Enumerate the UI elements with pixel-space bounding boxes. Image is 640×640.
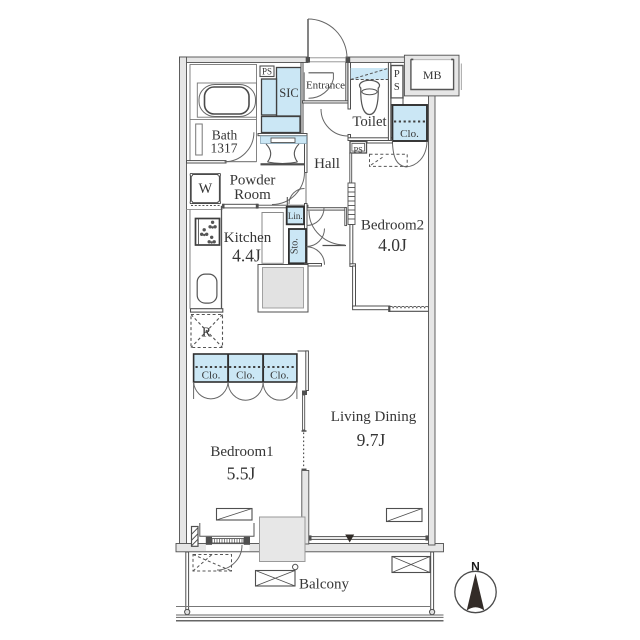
svg-text:Toilet: Toilet [352,114,387,130]
svg-text:N: N [471,560,480,574]
svg-text:P: P [394,69,400,80]
svg-text:PS: PS [262,67,272,77]
svg-text:Clo.: Clo. [270,370,289,382]
svg-text:Clo.: Clo. [236,370,255,382]
svg-text:MB: MB [423,68,442,82]
svg-text:Bedroom2: Bedroom2 [361,217,424,233]
svg-text:S: S [394,82,400,93]
svg-text:Lin.: Lin. [288,211,303,221]
svg-text:Clo.: Clo. [400,128,419,140]
svg-text:5.5J: 5.5J [227,464,256,484]
svg-text:Entrance: Entrance [306,80,345,92]
svg-text:W: W [198,181,212,197]
svg-text:Room: Room [234,187,271,203]
svg-text:Bedroom1: Bedroom1 [210,444,273,460]
svg-text:4.4J: 4.4J [232,246,261,266]
svg-text:Balcony: Balcony [299,577,349,593]
svg-text:Clo.: Clo. [202,370,221,382]
svg-text:1317: 1317 [211,141,238,156]
svg-text:4.0J: 4.0J [378,235,407,255]
svg-text:R: R [202,325,211,340]
svg-text:Kitchen: Kitchen [224,230,272,246]
svg-text:Sto.: Sto. [289,238,300,254]
svg-text:Living Dining: Living Dining [331,409,417,425]
svg-text:Hall: Hall [314,156,340,172]
svg-text:9.7J: 9.7J [357,430,386,450]
svg-text:SIC: SIC [279,86,298,100]
svg-text:PS: PS [353,145,363,155]
